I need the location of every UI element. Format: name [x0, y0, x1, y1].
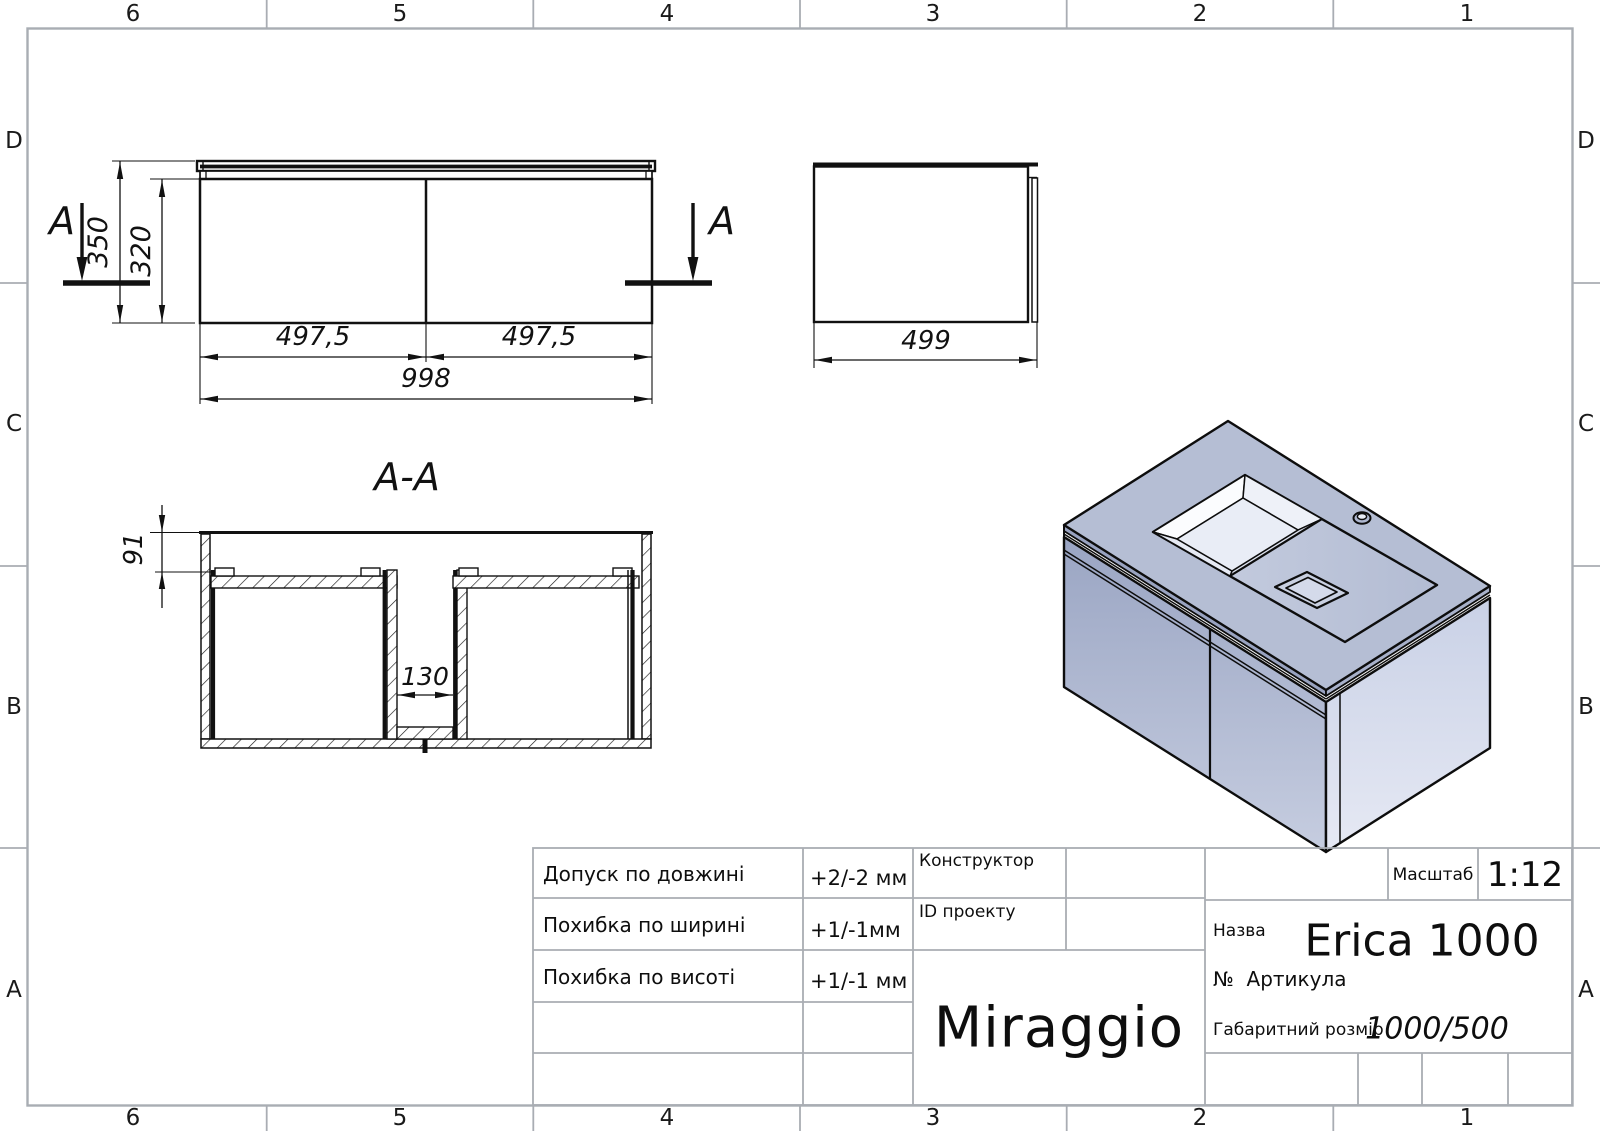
- zone-col-5-bottom: 5: [393, 1105, 408, 1131]
- zone-col-3-bottom: 3: [926, 1105, 941, 1131]
- dim-497-right: 497,5: [502, 322, 576, 352]
- zone-row-b-right: B: [1578, 694, 1594, 720]
- tolerance-width-value: +1/-1мм: [810, 918, 901, 942]
- zone-col-3-top: 3: [926, 1, 941, 27]
- front-view: 350 320 497,5 497,5 998 A A: [46, 161, 735, 404]
- tolerance-length-label: Допуск по довжині: [543, 862, 744, 886]
- dim-497-left: 497,5: [276, 322, 350, 352]
- zone-col-6-bottom: 6: [126, 1105, 141, 1131]
- zone-col-4-bottom: 4: [660, 1105, 675, 1131]
- zone-row-d-right: D: [1577, 128, 1595, 154]
- zone-row-c-right: C: [1578, 411, 1594, 437]
- size-value: 1000/500: [1365, 1012, 1509, 1047]
- dim-130: 130: [401, 662, 449, 691]
- zone-col-6-top: 6: [126, 1, 141, 27]
- side-view: 499: [813, 165, 1038, 369]
- scale-value: 1:12: [1487, 855, 1563, 895]
- zone-row-d-left: D: [5, 128, 23, 154]
- project-id-label: ID проекту: [919, 902, 1016, 922]
- isometric-view: [1064, 421, 1490, 852]
- zone-col-1-top: 1: [1460, 1, 1475, 27]
- dim-499: 499: [901, 326, 951, 356]
- dim-320: 320: [126, 225, 157, 277]
- section-view: A-A: [119, 455, 653, 753]
- zone-col-1-bottom: 1: [1460, 1105, 1475, 1131]
- article-label: № Артикула: [1213, 967, 1347, 991]
- brand-logo: Miraggio: [934, 996, 1184, 1061]
- name-label: Назва: [1213, 921, 1266, 941]
- section-label-left: A: [46, 199, 75, 243]
- size-label: Габаритний розмір: [1213, 1020, 1384, 1040]
- tolerance-height-label: Похибка по висоті: [543, 965, 735, 989]
- scale-label: Масштаб: [1393, 865, 1474, 885]
- zone-col-4-top: 4: [660, 1, 675, 27]
- section-label-right: A: [706, 199, 735, 243]
- tolerance-height-value: +1/-1 мм: [810, 969, 907, 993]
- zone-row-b-left: B: [6, 694, 22, 720]
- zone-col-2-top: 2: [1193, 1, 1208, 27]
- drawing-sheet: 350 320 497,5 497,5 998 A A 499: [0, 0, 1600, 1131]
- zone-row-a-left: A: [6, 977, 22, 1003]
- constructor-label: Конструктор: [919, 851, 1034, 871]
- tolerance-width-label: Похибка по ширині: [543, 913, 745, 937]
- zone-row-a-right: A: [1578, 977, 1594, 1003]
- dim-998: 998: [401, 364, 451, 394]
- zone-col-2-bottom: 2: [1193, 1105, 1208, 1131]
- zone-row-c-left: C: [6, 411, 22, 437]
- tolerance-length-value: +2/-2 мм: [810, 866, 907, 890]
- section-title: A-A: [371, 455, 440, 499]
- dim-91: 91: [119, 532, 149, 565]
- product-name: Erica 1000: [1304, 916, 1539, 967]
- zone-col-5-top: 5: [393, 1, 408, 27]
- dim-350: 350: [83, 216, 114, 268]
